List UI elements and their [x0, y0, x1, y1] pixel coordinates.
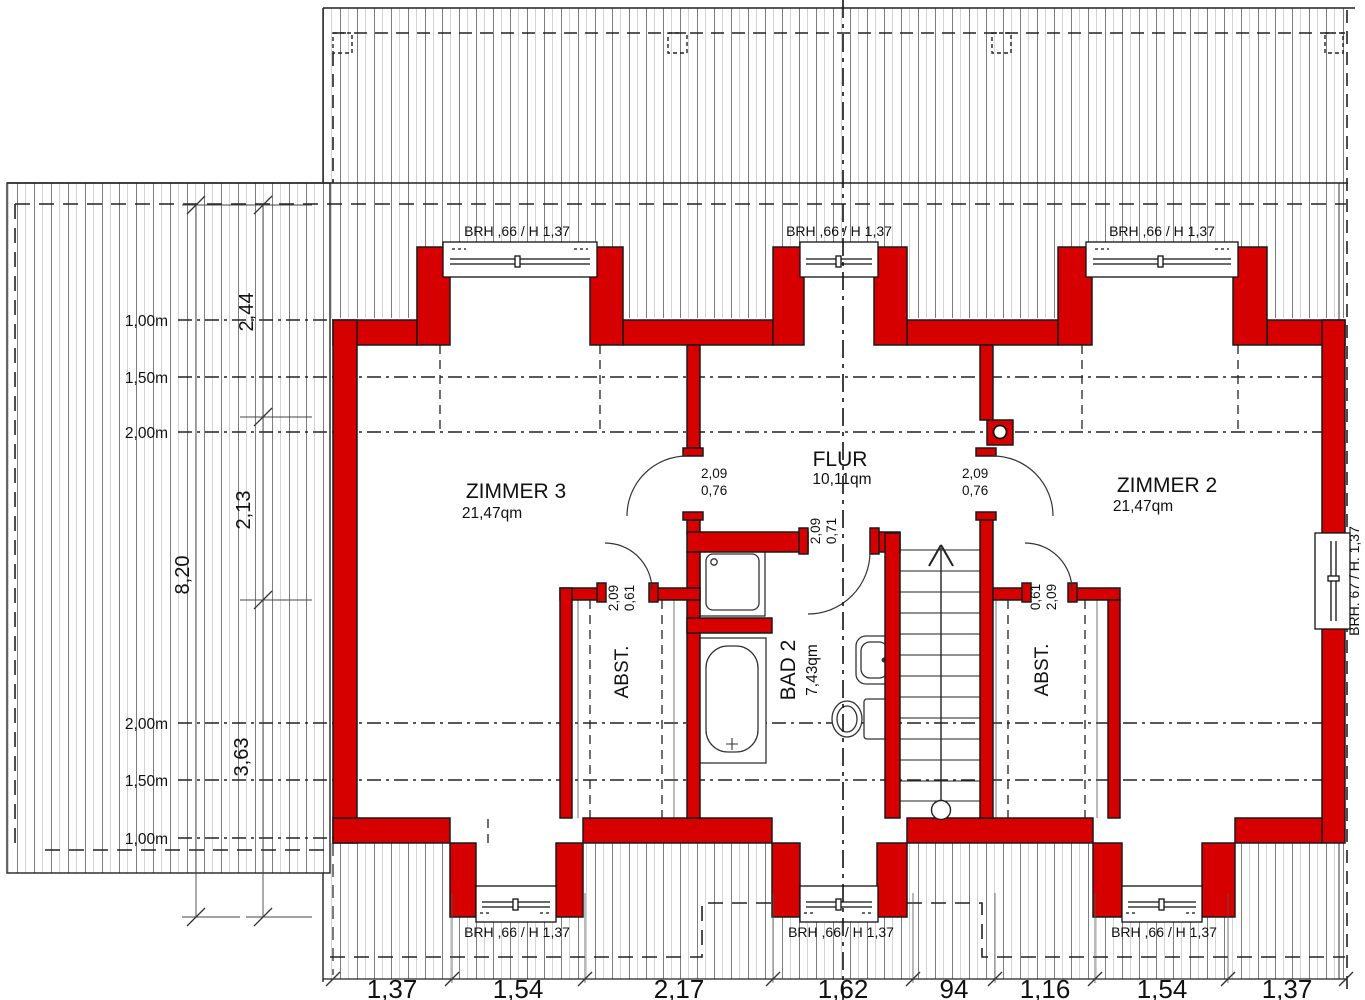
window-bottom-right: [1122, 886, 1202, 922]
room-label-abst-left: ABST.: [612, 646, 633, 699]
door-label-zimmer2-w: 0,76: [962, 483, 988, 498]
dim-bottom-7: 1,54: [1137, 974, 1188, 1000]
wall-flur-left-stub: [687, 345, 700, 448]
building-footprint: [333, 242, 1350, 922]
room-area-bad2: 7,43qm: [804, 644, 821, 696]
window-label-bottom-middle: BRH ,66 / H 1,37: [788, 924, 894, 940]
dim-bottom-6: 1,16: [1020, 974, 1071, 1000]
shower-tray: [700, 548, 765, 616]
room-area-flur: 10,11qm: [812, 471, 871, 488]
floorplan-drawing: 1,37 1,54 2,17 1,62 94 1,16 1,54 1,37 2,…: [0, 0, 1365, 1000]
wall-stair-right: [980, 513, 993, 818]
dim-bottom-2: 1,54: [493, 974, 544, 1000]
wall-bad-north: [687, 532, 808, 552]
window-right-wall: [1315, 533, 1350, 629]
stair-walkline-start: [932, 801, 951, 820]
room-label-flur: FLUR: [813, 448, 868, 471]
window-label-top-left: BRH ,66 / H 1,37: [464, 223, 570, 239]
room-label-zimmer3: ZIMMER 3: [466, 480, 566, 503]
door-label-abst-left-w: 0,61: [622, 585, 637, 611]
wall-flur-right-stub: [980, 345, 993, 420]
dim-left-total: 8,20: [172, 556, 194, 595]
window-bottom-middle: [800, 886, 878, 922]
dim-bottom-3: 2,17: [654, 974, 705, 1000]
contour-lower-200: 2,00m: [125, 716, 168, 733]
window-label-bottom-right: BRH ,66 / H 1,37: [1111, 924, 1217, 940]
window-label-bottom-left: BRH ,66 / H 1,37: [464, 924, 570, 940]
window-top-left: [443, 242, 597, 277]
door-label-zimmer3-w: 0,76: [701, 483, 727, 498]
wall-abst-left-west: [560, 588, 572, 818]
dim-bottom-1: 1,37: [367, 974, 418, 1000]
door-label-bad2-h: 2,09: [808, 518, 823, 544]
wall-left: [333, 320, 357, 843]
window-bottom-left: [476, 886, 556, 922]
wall-right-upper: [1322, 320, 1345, 535]
window-label-top-middle: BRH ,66 / H 1,37: [786, 223, 892, 239]
door-label-abst-right-h: 2,09: [1044, 584, 1059, 610]
window-label-right-wall: BRH. 67 / H. 1,37: [1346, 526, 1362, 636]
dim-bottom-8: 1,37: [1262, 974, 1313, 1000]
dim-left-seg-3: 3,63: [231, 738, 253, 777]
wall-shower-stub: [687, 618, 772, 633]
contour-lower-150: 1,50m: [125, 773, 168, 790]
room-label-bad2: BAD 2: [777, 640, 800, 701]
door-label-bad2-w: 0,71: [824, 518, 839, 544]
contour-upper-100: 1,00m: [125, 313, 168, 330]
contour-upper-150: 1,50m: [125, 370, 168, 387]
dim-left-seg-1: 2,44: [236, 293, 258, 332]
contour-upper-200: 2,00m: [125, 425, 168, 442]
window-top-right: [1086, 242, 1238, 277]
floorplan-page: 1,37 1,54 2,17 1,62 94 1,16 1,54 1,37 2,…: [0, 0, 1365, 1000]
contour-lower-100: 1,00m: [125, 831, 168, 848]
dim-left-seg-2: 2,13: [233, 491, 255, 530]
bathtub: [698, 638, 766, 763]
door-label-zimmer2-h: 2,09: [962, 466, 988, 481]
dim-bottom-5: 94: [940, 974, 969, 1000]
wall-stair-left: [885, 533, 900, 818]
door-label-abst-left-h: 2,09: [606, 585, 621, 611]
wall-right-lower: [1322, 627, 1345, 843]
door-label-zimmer3-h: 2,09: [701, 466, 727, 481]
room-area-zimmer2: 21,47qm: [1113, 498, 1173, 515]
window-label-top-right: BRH ,66 / H 1,37: [1109, 223, 1215, 239]
window-top-middle: [800, 242, 878, 277]
chimney-flue-circle: [994, 426, 1007, 439]
room-label-zimmer2: ZIMMER 2: [1117, 474, 1217, 497]
room-label-abst-right: ABST.: [1032, 644, 1053, 697]
wall-abst-right-east: [1108, 600, 1120, 818]
room-area-zimmer3: 21,47qm: [462, 505, 522, 522]
door-label-abst-right-w: 0,61: [1028, 584, 1043, 610]
